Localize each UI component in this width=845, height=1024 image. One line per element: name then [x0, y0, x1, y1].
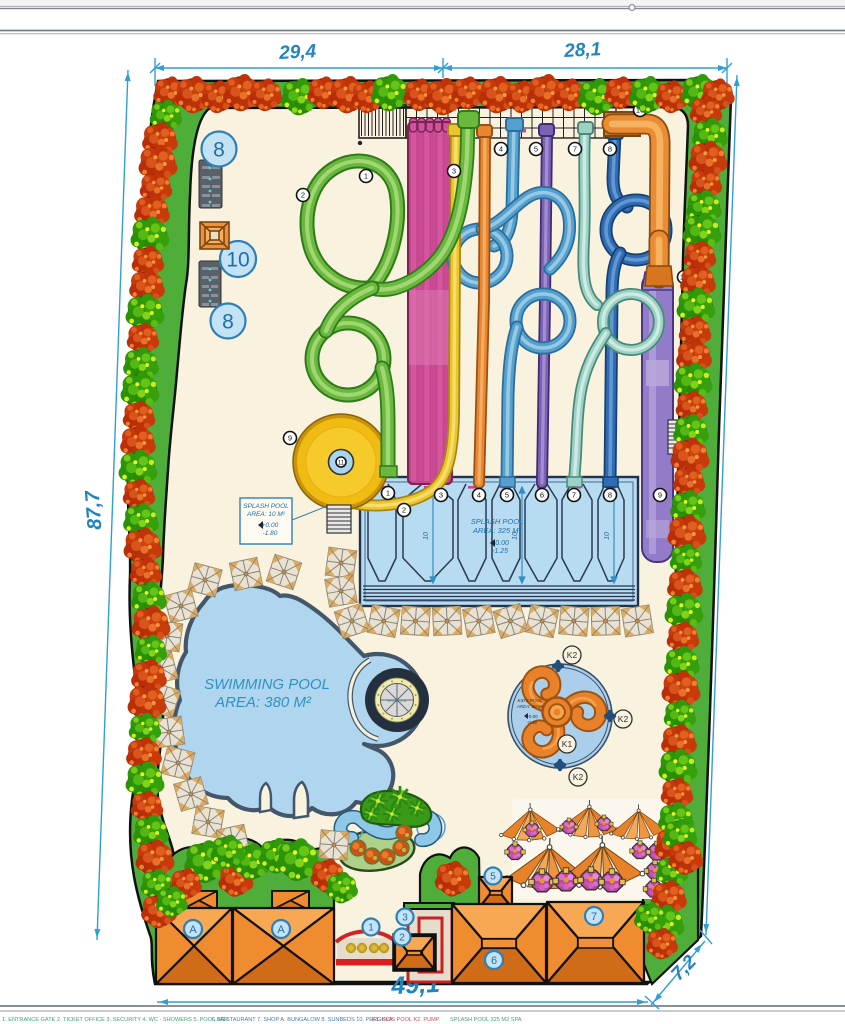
svg-text:6: 6 — [540, 491, 544, 500]
svg-text:A: A — [189, 924, 197, 936]
svg-text:+0.00: +0.00 — [262, 522, 279, 529]
svg-text:87,7: 87,7 — [82, 489, 107, 530]
svg-text:SPA POOL: SPA POOL — [387, 698, 407, 703]
svg-text:K2: K2 — [567, 650, 578, 660]
svg-text:AREA: 380 M²: AREA: 380 M² — [214, 694, 312, 711]
svg-text:28,1: 28,1 — [563, 39, 602, 62]
svg-text:5: 5 — [505, 491, 509, 500]
svg-text:3: 3 — [439, 491, 443, 500]
svg-text:1: 1 — [364, 172, 368, 181]
svg-text:SWIMMING POOL: SWIMMING POOL — [204, 676, 330, 693]
svg-text:SPLASH POOL: SPLASH POOL — [243, 503, 289, 510]
svg-text:8: 8 — [213, 139, 225, 162]
svg-text:K1. KIDS POOL K2. PUMP: K1. KIDS POOL K2. PUMP — [372, 1017, 440, 1023]
svg-text:AREA: 10 M²: AREA: 10 M² — [246, 511, 286, 518]
svg-text:7: 7 — [572, 491, 576, 500]
svg-text:K1: K1 — [562, 739, 573, 749]
svg-text:6: 6 — [491, 955, 497, 967]
svg-text:AREA: 325 M²: AREA: 325 M² — [472, 526, 521, 535]
svg-text:3: 3 — [452, 167, 456, 176]
svg-text:6. RESTAURANT 7. SHOP A. BUNGA: 6. RESTAURANT 7. SHOP A. BUNGALOW 8. SUN… — [212, 1017, 393, 1023]
svg-text:1. ENTRANCE GATE 2. TICKET OFF: 1. ENTRANCE GATE 2. TICKET OFFICE 3. SEC… — [2, 1017, 228, 1023]
svg-text:1: 1 — [368, 923, 374, 934]
svg-text:2: 2 — [301, 191, 305, 200]
svg-text:29,4: 29,4 — [278, 41, 317, 64]
svg-text:10: 10 — [423, 532, 430, 540]
svg-text:9: 9 — [658, 491, 662, 500]
svg-text:10: 10 — [226, 249, 249, 272]
svg-text:3: 3 — [402, 913, 408, 924]
svg-text:KID'S POOL: KID'S POOL — [517, 698, 543, 703]
svg-text:-1.80: -1.80 — [263, 530, 278, 537]
svg-text:4: 4 — [477, 491, 481, 500]
svg-text:SPLASH POOL: SPLASH POOL — [471, 517, 524, 526]
svg-text:11: 11 — [338, 461, 345, 467]
svg-text:-0.40: -0.40 — [527, 720, 538, 725]
svg-text:2: 2 — [402, 506, 406, 515]
svg-text:5: 5 — [534, 145, 538, 154]
svg-text:5: 5 — [490, 872, 496, 883]
svg-text:-1.25: -1.25 — [492, 548, 508, 555]
svg-text:10: 10 — [604, 532, 611, 540]
svg-text:A: A — [277, 924, 285, 936]
svg-text:8: 8 — [222, 311, 234, 334]
svg-text:AREA: 80 M²: AREA: 80 M² — [516, 704, 544, 709]
svg-text:K2: K2 — [573, 772, 584, 782]
svg-text:9: 9 — [288, 434, 292, 443]
svg-text:2: 2 — [399, 933, 405, 944]
svg-text:K2: K2 — [618, 714, 629, 724]
svg-text:SPLASH POOL 325 M2 SPA: SPLASH POOL 325 M2 SPA — [450, 1017, 522, 1023]
svg-text:4: 4 — [499, 145, 503, 154]
svg-text:1: 1 — [386, 489, 390, 498]
svg-text:7: 7 — [591, 911, 597, 923]
svg-text:+0.00: +0.00 — [526, 714, 538, 719]
svg-text:7: 7 — [573, 145, 577, 154]
svg-text:8: 8 — [608, 491, 612, 500]
svg-text:8: 8 — [608, 145, 612, 154]
